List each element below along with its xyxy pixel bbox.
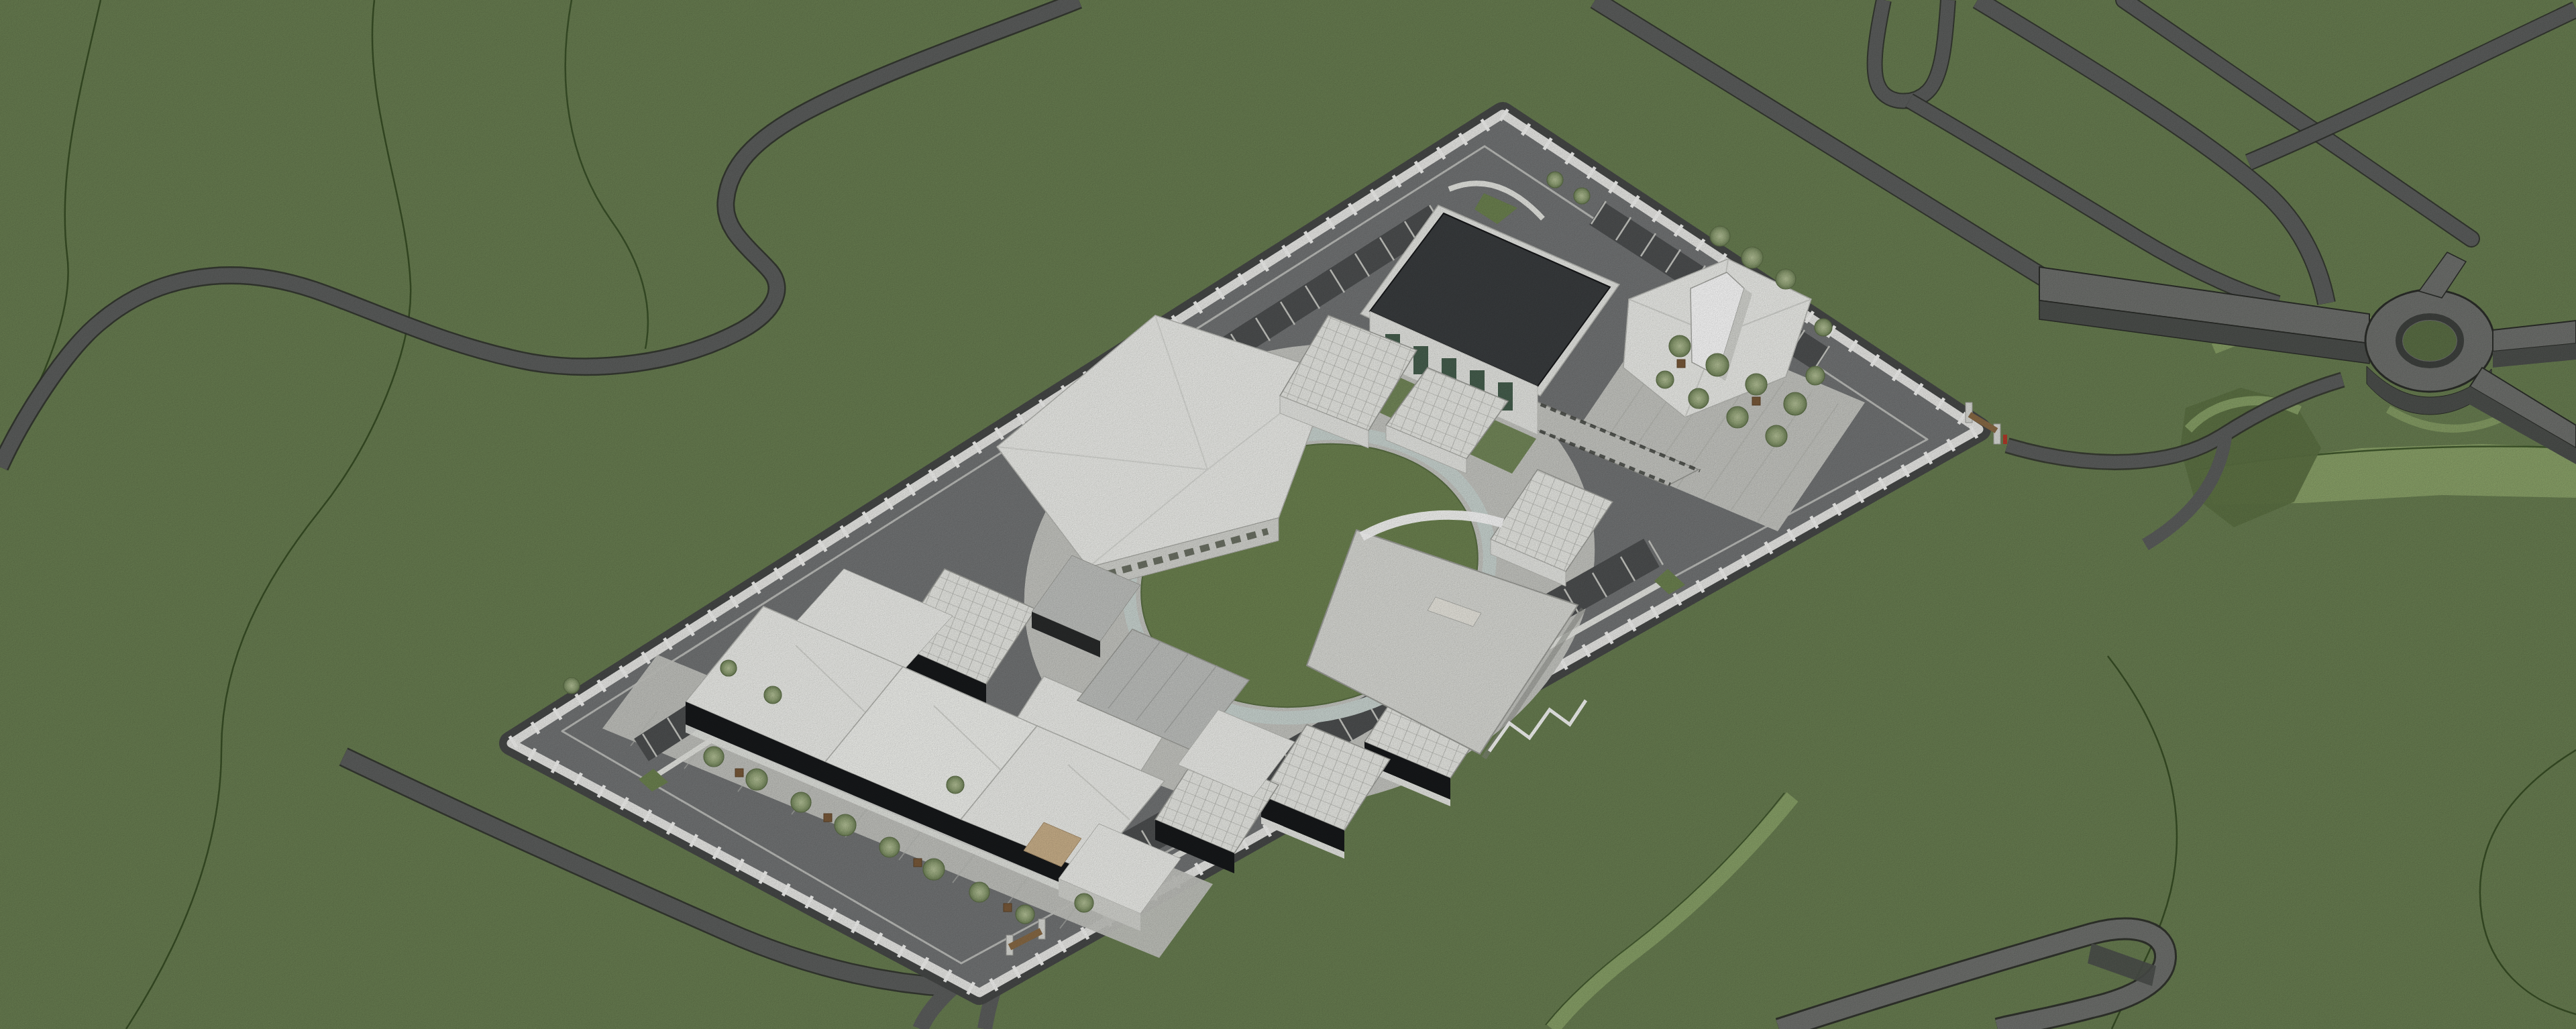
grain-texture-overlay bbox=[0, 0, 2576, 1029]
viewport bbox=[0, 0, 2576, 1029]
site-3d-render bbox=[0, 0, 2576, 1029]
